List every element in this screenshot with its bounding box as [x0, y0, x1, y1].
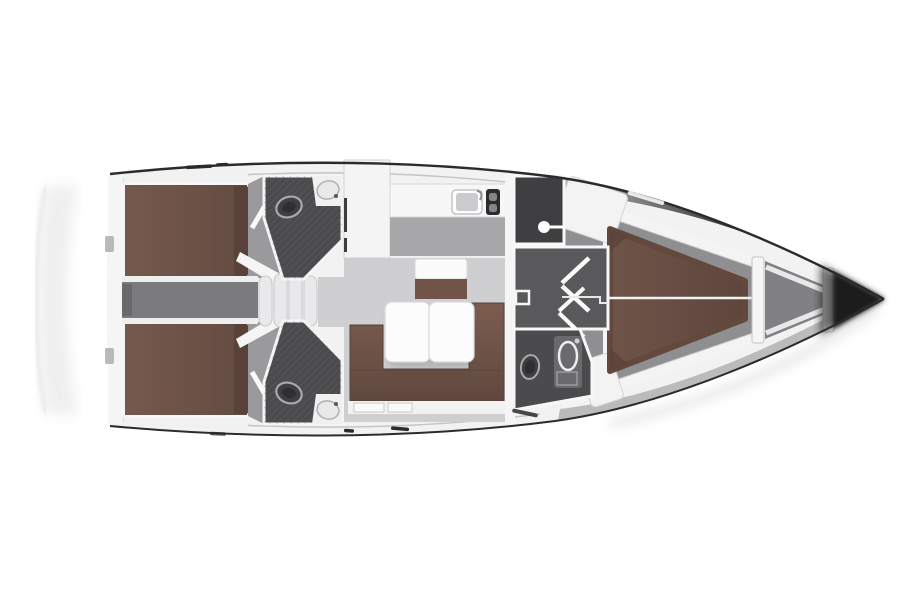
nav-cabinet	[344, 160, 390, 258]
salon-table-leaf-right	[429, 302, 474, 362]
hull-window-dash	[344, 429, 354, 433]
shower-room	[514, 176, 564, 244]
salon	[318, 258, 512, 422]
wet-floor	[514, 176, 564, 244]
corridor-floor	[122, 282, 258, 318]
hull-window-dash	[216, 163, 228, 167]
nav-area	[344, 160, 390, 258]
door-hinge-mark	[344, 198, 347, 232]
door-hinge-mark	[344, 238, 347, 252]
faucet-icon	[575, 339, 580, 344]
vestibule	[514, 247, 608, 337]
salon-table-leaf-left	[385, 302, 430, 362]
corridor-end-step	[122, 284, 132, 316]
companionway-landing	[318, 277, 348, 327]
corridor-trim-bottom	[122, 318, 258, 324]
step-tread	[259, 276, 272, 326]
galley-sink-basin	[456, 193, 478, 211]
transom-notch-top	[105, 236, 114, 252]
bench-seat-base	[415, 279, 467, 299]
stern-soft-shadow	[39, 186, 79, 414]
sofa-drawer	[388, 403, 412, 412]
stove-burner	[489, 193, 497, 201]
transom-wall	[108, 176, 124, 424]
galley	[390, 184, 512, 260]
sofa-drawer	[354, 403, 384, 412]
step-tread	[304, 276, 317, 326]
shower-icon	[538, 221, 550, 233]
bulkhead-near	[752, 257, 764, 343]
step-tread	[289, 274, 302, 327]
sink-drain	[334, 194, 338, 198]
hull-window-dash	[210, 432, 226, 436]
vanity-panel	[554, 336, 582, 388]
sink-drain	[334, 402, 338, 406]
bench-seat-cushion	[415, 259, 467, 279]
engine-corridor	[122, 276, 258, 324]
step-tread	[274, 274, 287, 327]
double-berth	[124, 184, 248, 278]
stove-burner	[489, 204, 497, 212]
galley-floor	[390, 214, 512, 258]
double-berth	[124, 322, 248, 416]
yacht-floorplan-page	[0, 0, 900, 600]
forward-head	[514, 329, 592, 410]
transom-notch-bottom	[105, 348, 114, 364]
yacht-floorplan	[0, 0, 900, 600]
corridor-trim-top	[122, 276, 258, 282]
